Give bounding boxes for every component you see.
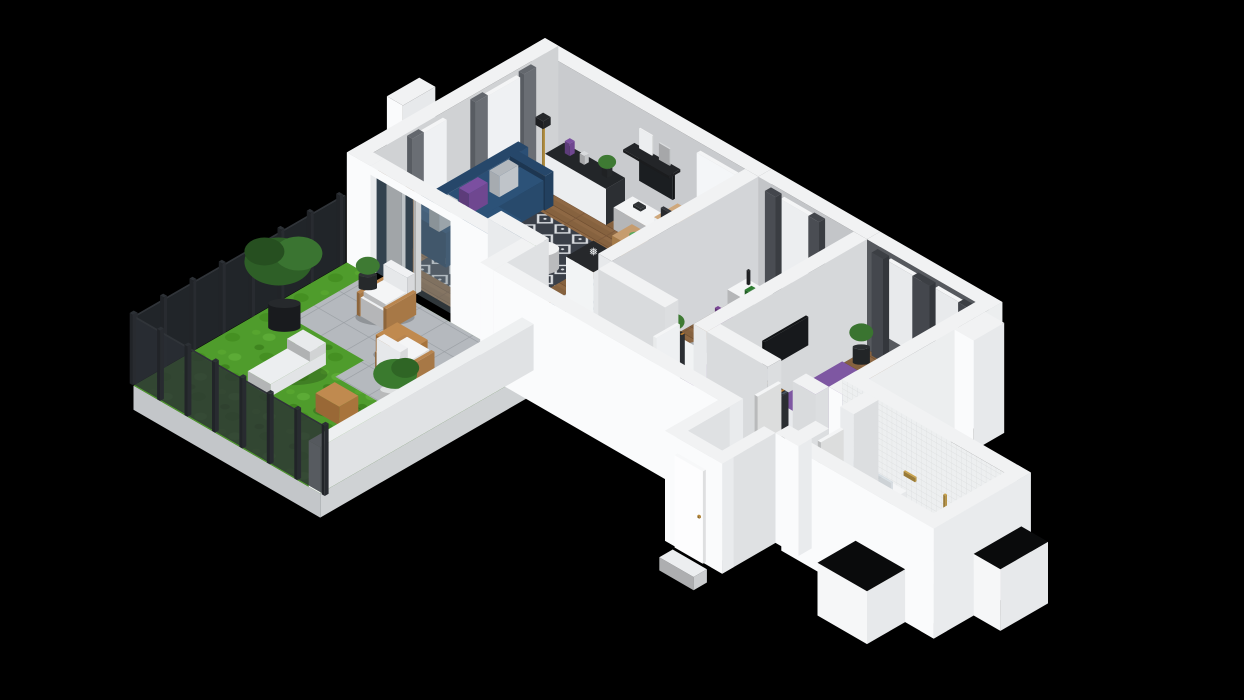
bedroom-plant-pot-n (853, 344, 870, 364)
apartment-3d-floorplan: Isometric 3D apartment floor plan render… (0, 0, 1244, 700)
corner-column (955, 312, 1005, 451)
garden-tree-pot (268, 299, 300, 332)
fridge-snowflake-icon: ❅ (589, 246, 598, 259)
sideboard-vase-white (580, 151, 589, 165)
kids-desk-lamp (747, 269, 751, 285)
garden-tree-canopy-c (244, 238, 284, 266)
bedroom-plant-leaves-n (849, 323, 873, 341)
sideboard-vase-purple (565, 138, 575, 156)
garden-plant-leaves-b (391, 358, 419, 378)
entry-front-door (675, 453, 706, 563)
svg-text:❅: ❅ (589, 246, 598, 259)
floorplan-canvas: ❅ (0, 0, 1244, 700)
terrace-plant-leaves (356, 257, 380, 275)
wall-hall-south-b (776, 425, 812, 556)
bedroom-curtain-a (872, 249, 890, 362)
sideboard-plant-leaves (598, 155, 616, 169)
